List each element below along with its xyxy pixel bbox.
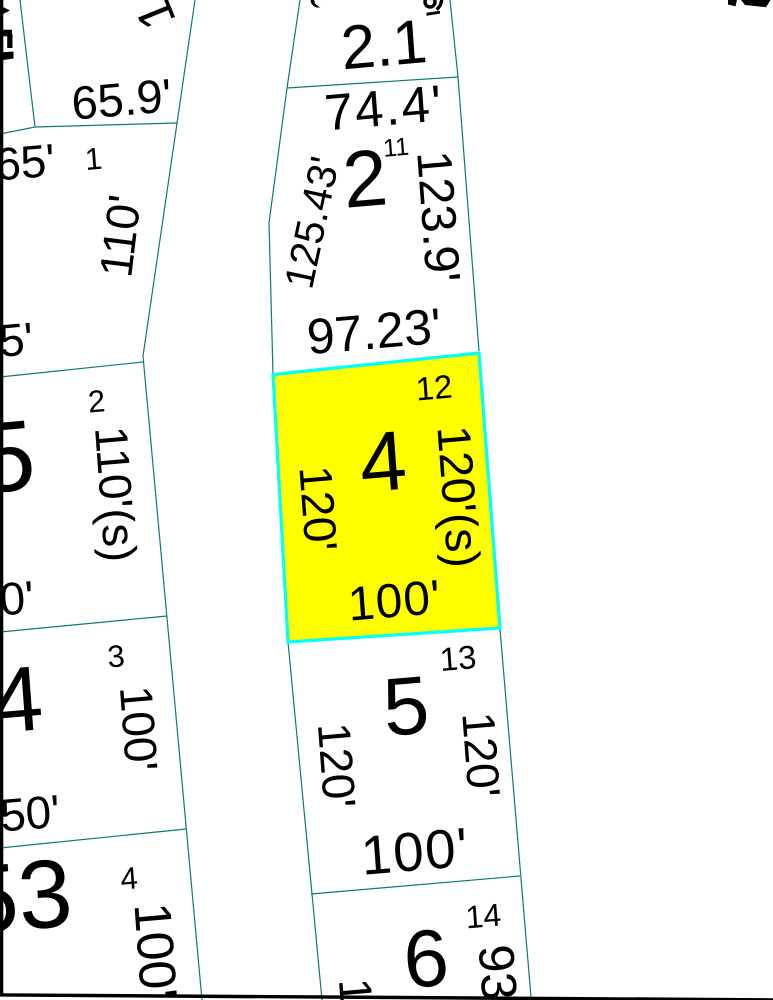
svg-text:93.5': 93.5' — [468, 942, 532, 1000]
svg-text:12: 12 — [414, 368, 453, 408]
svg-text:100': 100' — [122, 900, 187, 1000]
svg-text:65': 65' — [0, 134, 57, 191]
svg-text:97.23': 97.23' — [305, 298, 443, 366]
svg-text:13: 13 — [438, 638, 477, 678]
svg-text:14: 14 — [464, 896, 502, 935]
svg-text:100': 100' — [110, 684, 168, 774]
svg-text:110': 110' — [89, 192, 151, 280]
svg-text:2: 2 — [340, 132, 391, 225]
svg-text:2.1: 2.1 — [339, 7, 430, 83]
svg-text:65.9': 65.9' — [70, 68, 174, 130]
svg-text:120': 120' — [308, 721, 366, 811]
svg-text:60': 60' — [0, 571, 36, 628]
svg-text:4: 4 — [356, 412, 409, 510]
svg-text:1: 1 — [84, 141, 104, 177]
svg-text:74.4': 74.4' — [323, 74, 446, 141]
svg-text:3: 3 — [106, 638, 126, 674]
svg-text:5': 5' — [0, 312, 35, 367]
svg-text:11: 11 — [382, 133, 410, 163]
svg-text:5: 5 — [380, 659, 432, 754]
svg-text:2: 2 — [87, 383, 107, 419]
svg-text:110'(s): 110'(s) — [85, 424, 147, 564]
svg-text:50': 50' — [0, 785, 62, 842]
svg-text:120': 120' — [289, 464, 347, 554]
svg-text:120'(s): 120'(s) — [427, 423, 490, 569]
svg-text:123.9': 123.9' — [406, 148, 469, 284]
svg-text:100': 100' — [346, 571, 443, 632]
svg-text:6: 6 — [400, 913, 451, 1000]
svg-text:4: 4 — [0, 647, 46, 753]
svg-text:120': 120' — [452, 710, 510, 800]
svg-text:100': 100' — [359, 816, 471, 887]
svg-text:53: 53 — [0, 837, 76, 955]
svg-text:4: 4 — [119, 860, 139, 896]
